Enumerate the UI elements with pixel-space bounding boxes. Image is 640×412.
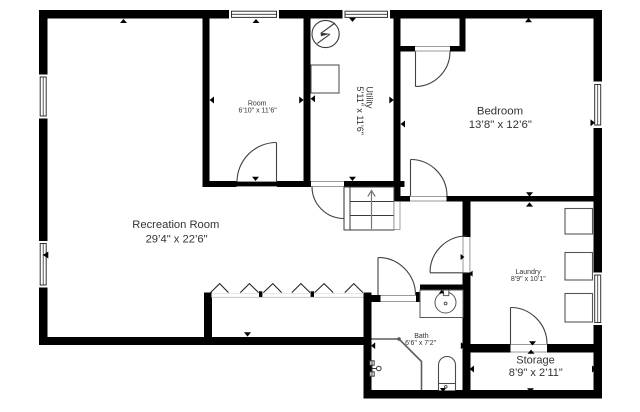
svg-text:5’11" x 11’6": 5’11" x 11’6"	[355, 86, 365, 135]
svg-text:Laundry: Laundry	[515, 269, 541, 276]
svg-text:Storage: Storage	[516, 354, 555, 366]
svg-text:8’9" x 10’1": 8’9" x 10’1"	[511, 276, 546, 283]
svg-text:Bath: Bath	[414, 333, 429, 340]
svg-text:Bedroom: Bedroom	[477, 106, 523, 118]
svg-text:Room: Room	[248, 100, 267, 107]
svg-text:6’6" x 7’2": 6’6" x 7’2"	[405, 340, 437, 347]
svg-text:8’9" x 2’11": 8’9" x 2’11"	[509, 367, 563, 379]
svg-text:Recreation Room: Recreation Room	[132, 219, 219, 231]
svg-text:13’8" x 12’6": 13’8" x 12’6"	[469, 119, 532, 131]
svg-text:6’10" x 11’6": 6’10" x 11’6"	[238, 108, 277, 115]
svg-text:29’4" x 22’6": 29’4" x 22’6"	[146, 234, 208, 246]
